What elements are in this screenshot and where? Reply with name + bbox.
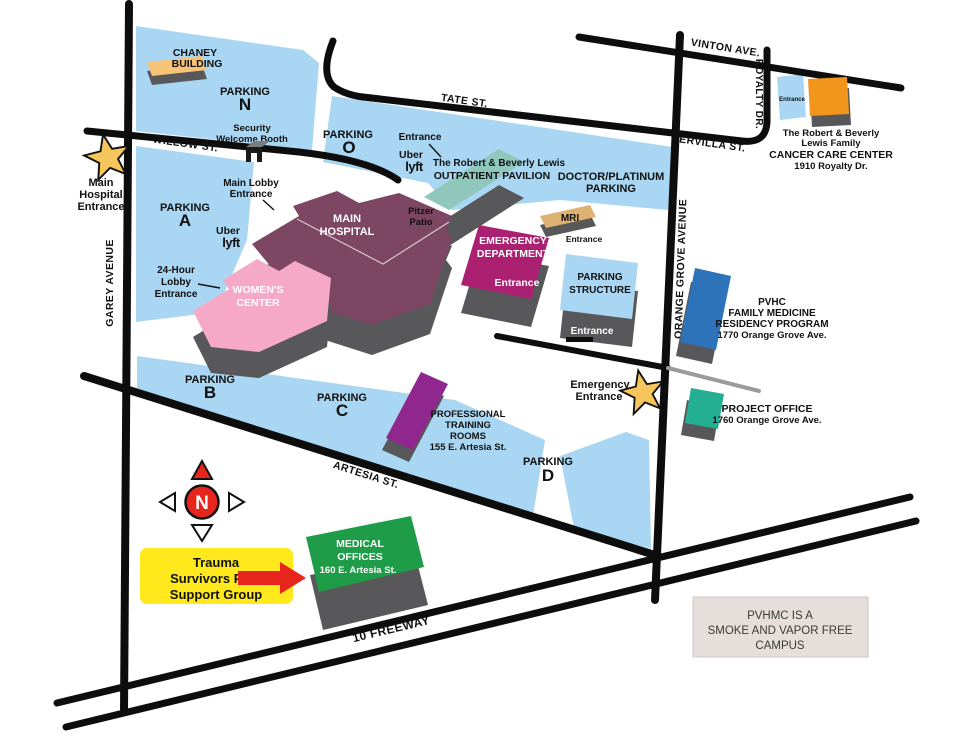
svg-text:1770 Orange Grove Ave.: 1770 Orange Grove Ave.: [717, 330, 826, 341]
womens-label: WOMEN'S: [233, 284, 284, 296]
svg-text:C: C: [336, 401, 348, 420]
svg-text:O: O: [342, 138, 355, 157]
svg-text:PARKING: PARKING: [586, 183, 636, 195]
road-garey-avenue: [124, 4, 129, 712]
svg-text:A: A: [179, 211, 191, 230]
lyft-logo: lyft: [222, 235, 241, 250]
svg-text:OFFICES: OFFICES: [337, 551, 383, 563]
emergency-entrance-text: Entrance: [495, 277, 540, 289]
svg-text:STRUCTURE: STRUCTURE: [569, 285, 631, 296]
svg-text:BUILDING: BUILDING: [172, 58, 223, 70]
svg-text:PVHC: PVHC: [758, 297, 786, 308]
svg-text:FAMILY MEDICINE: FAMILY MEDICINE: [728, 308, 816, 319]
svg-text:1760 Orange Grove Ave.: 1760 Orange Grove Ave.: [712, 415, 821, 426]
svg-text:Trauma: Trauma: [193, 555, 240, 570]
building-parking-structure: PARKING STRUCTURE Entrance: [560, 254, 638, 347]
street-label-garey: GAREY AVENUE: [104, 239, 116, 326]
svg-text:Emergency: Emergency: [570, 379, 630, 391]
svg-text:CANCER CARE CENTER: CANCER CARE CENTER: [769, 149, 893, 161]
svg-text:PROFESSIONAL: PROFESSIONAL: [431, 409, 506, 420]
svg-text:OUTPATIENT PAVILION: OUTPATIENT PAVILION: [434, 170, 550, 182]
svg-text:Lobby: Lobby: [161, 277, 191, 288]
svg-text:N: N: [239, 95, 251, 114]
emergency-label: EMERGENCY: [479, 235, 547, 247]
svg-text:Entrance: Entrance: [77, 201, 124, 213]
svg-text:CAMPUS: CAMPUS: [755, 640, 805, 652]
svg-text:SMOKE AND VAPOR FREE: SMOKE AND VAPOR FREE: [708, 625, 853, 637]
smoke-free-notice: PVHMC IS A SMOKE AND VAPOR FREE CAMPUS: [693, 597, 868, 657]
structure-entrance-text: Entrance: [571, 326, 614, 337]
svg-text:24-Hour: 24-Hour: [157, 265, 195, 276]
svg-text:Entrance: Entrance: [575, 391, 622, 403]
svg-text:HOSPITAL: HOSPITAL: [320, 226, 375, 238]
svg-text:Lewis Family: Lewis Family: [801, 138, 861, 149]
svg-text:Main Lobby: Main Lobby: [223, 178, 279, 189]
mri-label: MRI: [561, 213, 580, 224]
svg-text:Patio: Patio: [409, 217, 432, 228]
project-office-label: PROJECT OFFICE 1760 Orange Grove Ave.: [712, 403, 821, 426]
svg-text:RESIDENCY PROGRAM: RESIDENCY PROGRAM: [715, 319, 828, 330]
svg-text:Support Group: Support Group: [170, 587, 262, 602]
svg-text:155 E. Artesia St.: 155 E. Artesia St.: [430, 442, 507, 453]
mri-entrance-text: Entrance: [566, 234, 603, 244]
svg-text:160 E. Artesia St.: 160 E. Artesia St.: [320, 565, 397, 576]
svg-text:CENTER: CENTER: [236, 297, 280, 309]
lyft-logo-upper: lyft: [405, 159, 424, 174]
pitzer-patio-label: Pitzer Patio: [408, 206, 434, 228]
security-label: Security: [233, 123, 271, 134]
structure-entrance-bar: [566, 337, 593, 342]
svg-text:TRAINING: TRAINING: [445, 420, 491, 431]
compass-n-label: N: [195, 493, 209, 514]
svg-text:PROJECT OFFICE: PROJECT OFFICE: [721, 403, 812, 415]
svg-text:DEPARTMENT: DEPARTMENT: [477, 248, 550, 260]
cancer-entrance-text: Entrance: [779, 97, 805, 103]
booth-door-icon: [251, 153, 257, 162]
cancer-top: [808, 77, 849, 116]
svg-text:DOCTOR/PLATINUM: DOCTOR/PLATINUM: [558, 171, 665, 183]
svg-text:PVHMC IS A: PVHMC IS A: [747, 610, 813, 622]
svg-text:Pitzer: Pitzer: [408, 206, 434, 217]
hospital-label: MAIN: [333, 213, 361, 225]
svg-text:Entrance: Entrance: [155, 289, 198, 300]
svg-text:D: D: [542, 466, 554, 485]
svg-text:Hospital: Hospital: [79, 189, 122, 201]
pavilion-entrance-text: Entrance: [399, 132, 442, 143]
svg-text:Entrance: Entrance: [230, 189, 273, 200]
medical-label: MEDICAL: [336, 538, 384, 550]
campus-map: GAREY AVENUE WILLOW ST. TATE ST. VINTON …: [0, 0, 958, 740]
svg-text:B: B: [204, 383, 216, 402]
svg-text:1910 Royalty Dr.: 1910 Royalty Dr.: [794, 161, 867, 172]
svg-text:ROOMS: ROOMS: [450, 431, 486, 442]
street-label-royalty: ROYALTY DR.: [753, 59, 764, 129]
pavilion-label: The Robert & Beverly Lewis: [433, 158, 566, 169]
svg-text:Main: Main: [88, 177, 113, 189]
structure-label: PARKING: [577, 272, 623, 283]
